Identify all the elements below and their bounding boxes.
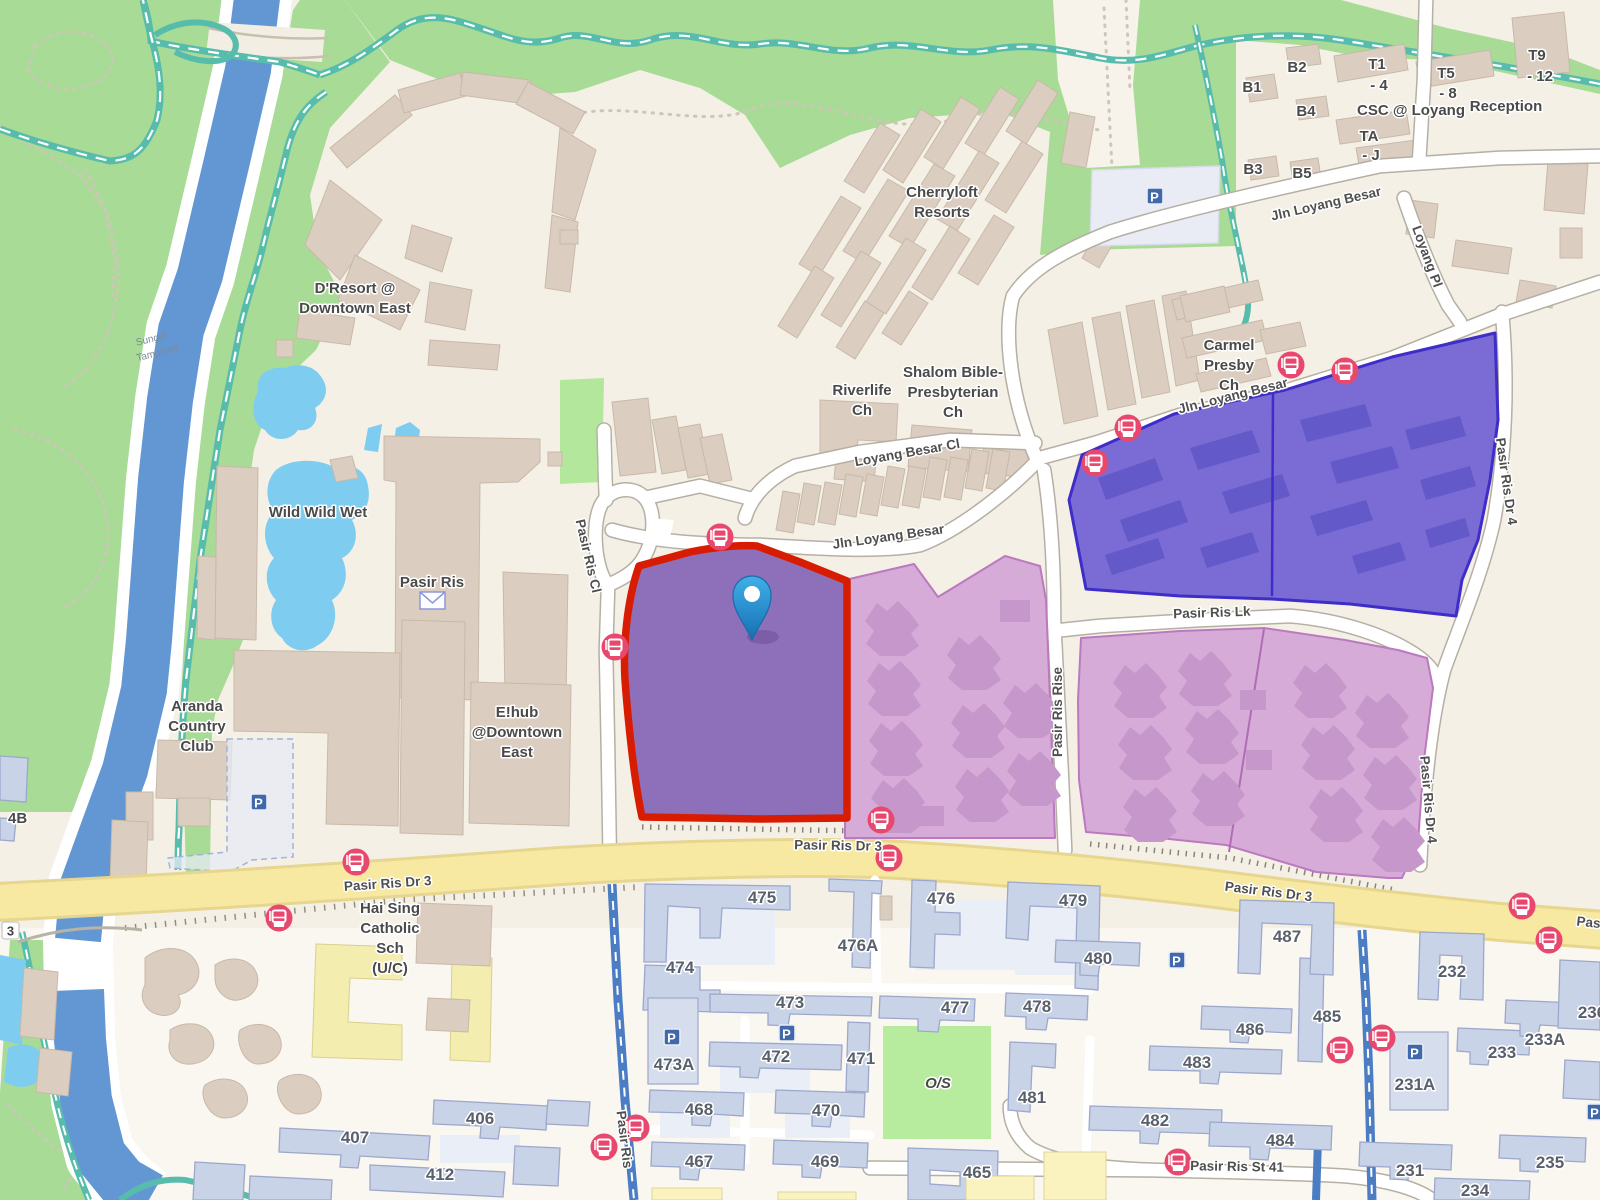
svg-text:Pasir Ris Dr 3: Pasir Ris Dr 3 (794, 837, 883, 854)
svg-text:TA: TA (1360, 128, 1379, 145)
svg-text:468: 468 (685, 1100, 713, 1119)
svg-text:Presby: Presby (1204, 357, 1255, 374)
svg-text:Carmel: Carmel (1204, 337, 1255, 354)
svg-text:Riverlife: Riverlife (832, 382, 891, 399)
svg-text:232: 232 (1438, 962, 1466, 981)
svg-text:(U/C): (U/C) (372, 960, 408, 977)
svg-text:473A: 473A (654, 1055, 695, 1074)
svg-text:Pasir Ris Lk: Pasir Ris Lk (1173, 604, 1251, 622)
svg-text:East: East (501, 744, 533, 761)
svg-text:Pasi: Pasi (1576, 914, 1600, 932)
svg-text:233: 233 (1488, 1043, 1516, 1062)
svg-text:469: 469 (811, 1152, 839, 1171)
svg-text:476: 476 (927, 889, 955, 908)
svg-text:482: 482 (1141, 1111, 1169, 1130)
svg-text:Pasir Ris St 41: Pasir Ris St 41 (1190, 1158, 1285, 1175)
svg-text:Country: Country (168, 718, 226, 735)
svg-text:465: 465 (963, 1163, 991, 1182)
svg-text:Downtown East: Downtown East (299, 300, 411, 317)
svg-text:Reception: Reception (1470, 98, 1543, 115)
svg-text:406: 406 (466, 1109, 494, 1128)
svg-text:487: 487 (1273, 927, 1301, 946)
svg-text:Resorts: Resorts (914, 204, 970, 221)
svg-text:T5: T5 (1437, 65, 1455, 82)
svg-text:- J: - J (1362, 147, 1380, 164)
svg-text:D'Resort @: D'Resort @ (315, 280, 396, 297)
svg-text:B2: B2 (1287, 59, 1306, 76)
svg-text:231: 231 (1396, 1161, 1424, 1180)
svg-text:481: 481 (1018, 1088, 1046, 1107)
svg-text:Catholic: Catholic (360, 920, 419, 937)
svg-text:O/S: O/S (925, 1075, 951, 1092)
svg-text:Presbyterian: Presbyterian (908, 384, 999, 401)
svg-text:Wild Wild Wet: Wild Wild Wet (269, 504, 368, 521)
svg-text:@Downtown: @Downtown (472, 724, 562, 741)
svg-text:412: 412 (426, 1165, 454, 1184)
svg-text:472: 472 (762, 1047, 790, 1066)
svg-text:T9: T9 (1528, 47, 1546, 64)
svg-text:476A: 476A (838, 936, 879, 955)
svg-text:475: 475 (748, 888, 776, 907)
svg-text:484: 484 (1266, 1131, 1295, 1150)
svg-text:Pasir Ris: Pasir Ris (400, 574, 464, 591)
svg-text:B1: B1 (1242, 79, 1261, 96)
svg-text:479: 479 (1059, 891, 1087, 910)
svg-text:- 8: - 8 (1439, 85, 1457, 102)
svg-text:E!hub: E!hub (496, 704, 539, 721)
svg-text:231A: 231A (1395, 1075, 1436, 1094)
svg-text:Hai Sing: Hai Sing (360, 900, 420, 917)
svg-text:470: 470 (812, 1101, 840, 1120)
svg-text:471: 471 (847, 1049, 875, 1068)
svg-text:Sch: Sch (376, 940, 404, 957)
svg-text:Club: Club (180, 738, 213, 755)
svg-text:Aranda: Aranda (171, 698, 223, 715)
svg-text:B3: B3 (1243, 161, 1262, 178)
svg-text:Shalom Bible-: Shalom Bible- (903, 364, 1003, 381)
svg-text:- 12: - 12 (1527, 68, 1553, 85)
svg-text:234: 234 (1461, 1181, 1490, 1200)
svg-text:235: 235 (1536, 1153, 1564, 1172)
svg-text:4B: 4B (8, 810, 27, 827)
svg-text:473: 473 (776, 993, 804, 1012)
svg-text:478: 478 (1023, 997, 1051, 1016)
svg-text:486: 486 (1236, 1020, 1264, 1039)
svg-text:477: 477 (941, 998, 969, 1017)
svg-text:Ch: Ch (943, 404, 963, 421)
svg-text:B5: B5 (1292, 165, 1311, 182)
svg-text:T1: T1 (1368, 56, 1386, 73)
svg-text:474: 474 (666, 958, 695, 977)
svg-text:483: 483 (1183, 1053, 1211, 1072)
svg-text:CSC @ Loyang: CSC @ Loyang (1357, 102, 1465, 119)
svg-text:- 4: - 4 (1370, 77, 1388, 94)
svg-text:485: 485 (1313, 1007, 1341, 1026)
svg-text:233A: 233A (1525, 1030, 1566, 1049)
svg-text:Ch: Ch (852, 402, 872, 419)
svg-text:236: 236 (1578, 1003, 1600, 1022)
svg-text:467: 467 (685, 1152, 713, 1171)
svg-text:480: 480 (1084, 949, 1112, 968)
svg-text:3: 3 (7, 924, 14, 939)
svg-text:B4: B4 (1296, 103, 1316, 120)
svg-text:407: 407 (341, 1128, 369, 1147)
svg-text:Cherryloft: Cherryloft (906, 184, 978, 201)
svg-text:Pasir Ris Rise: Pasir Ris Rise (1050, 666, 1065, 757)
